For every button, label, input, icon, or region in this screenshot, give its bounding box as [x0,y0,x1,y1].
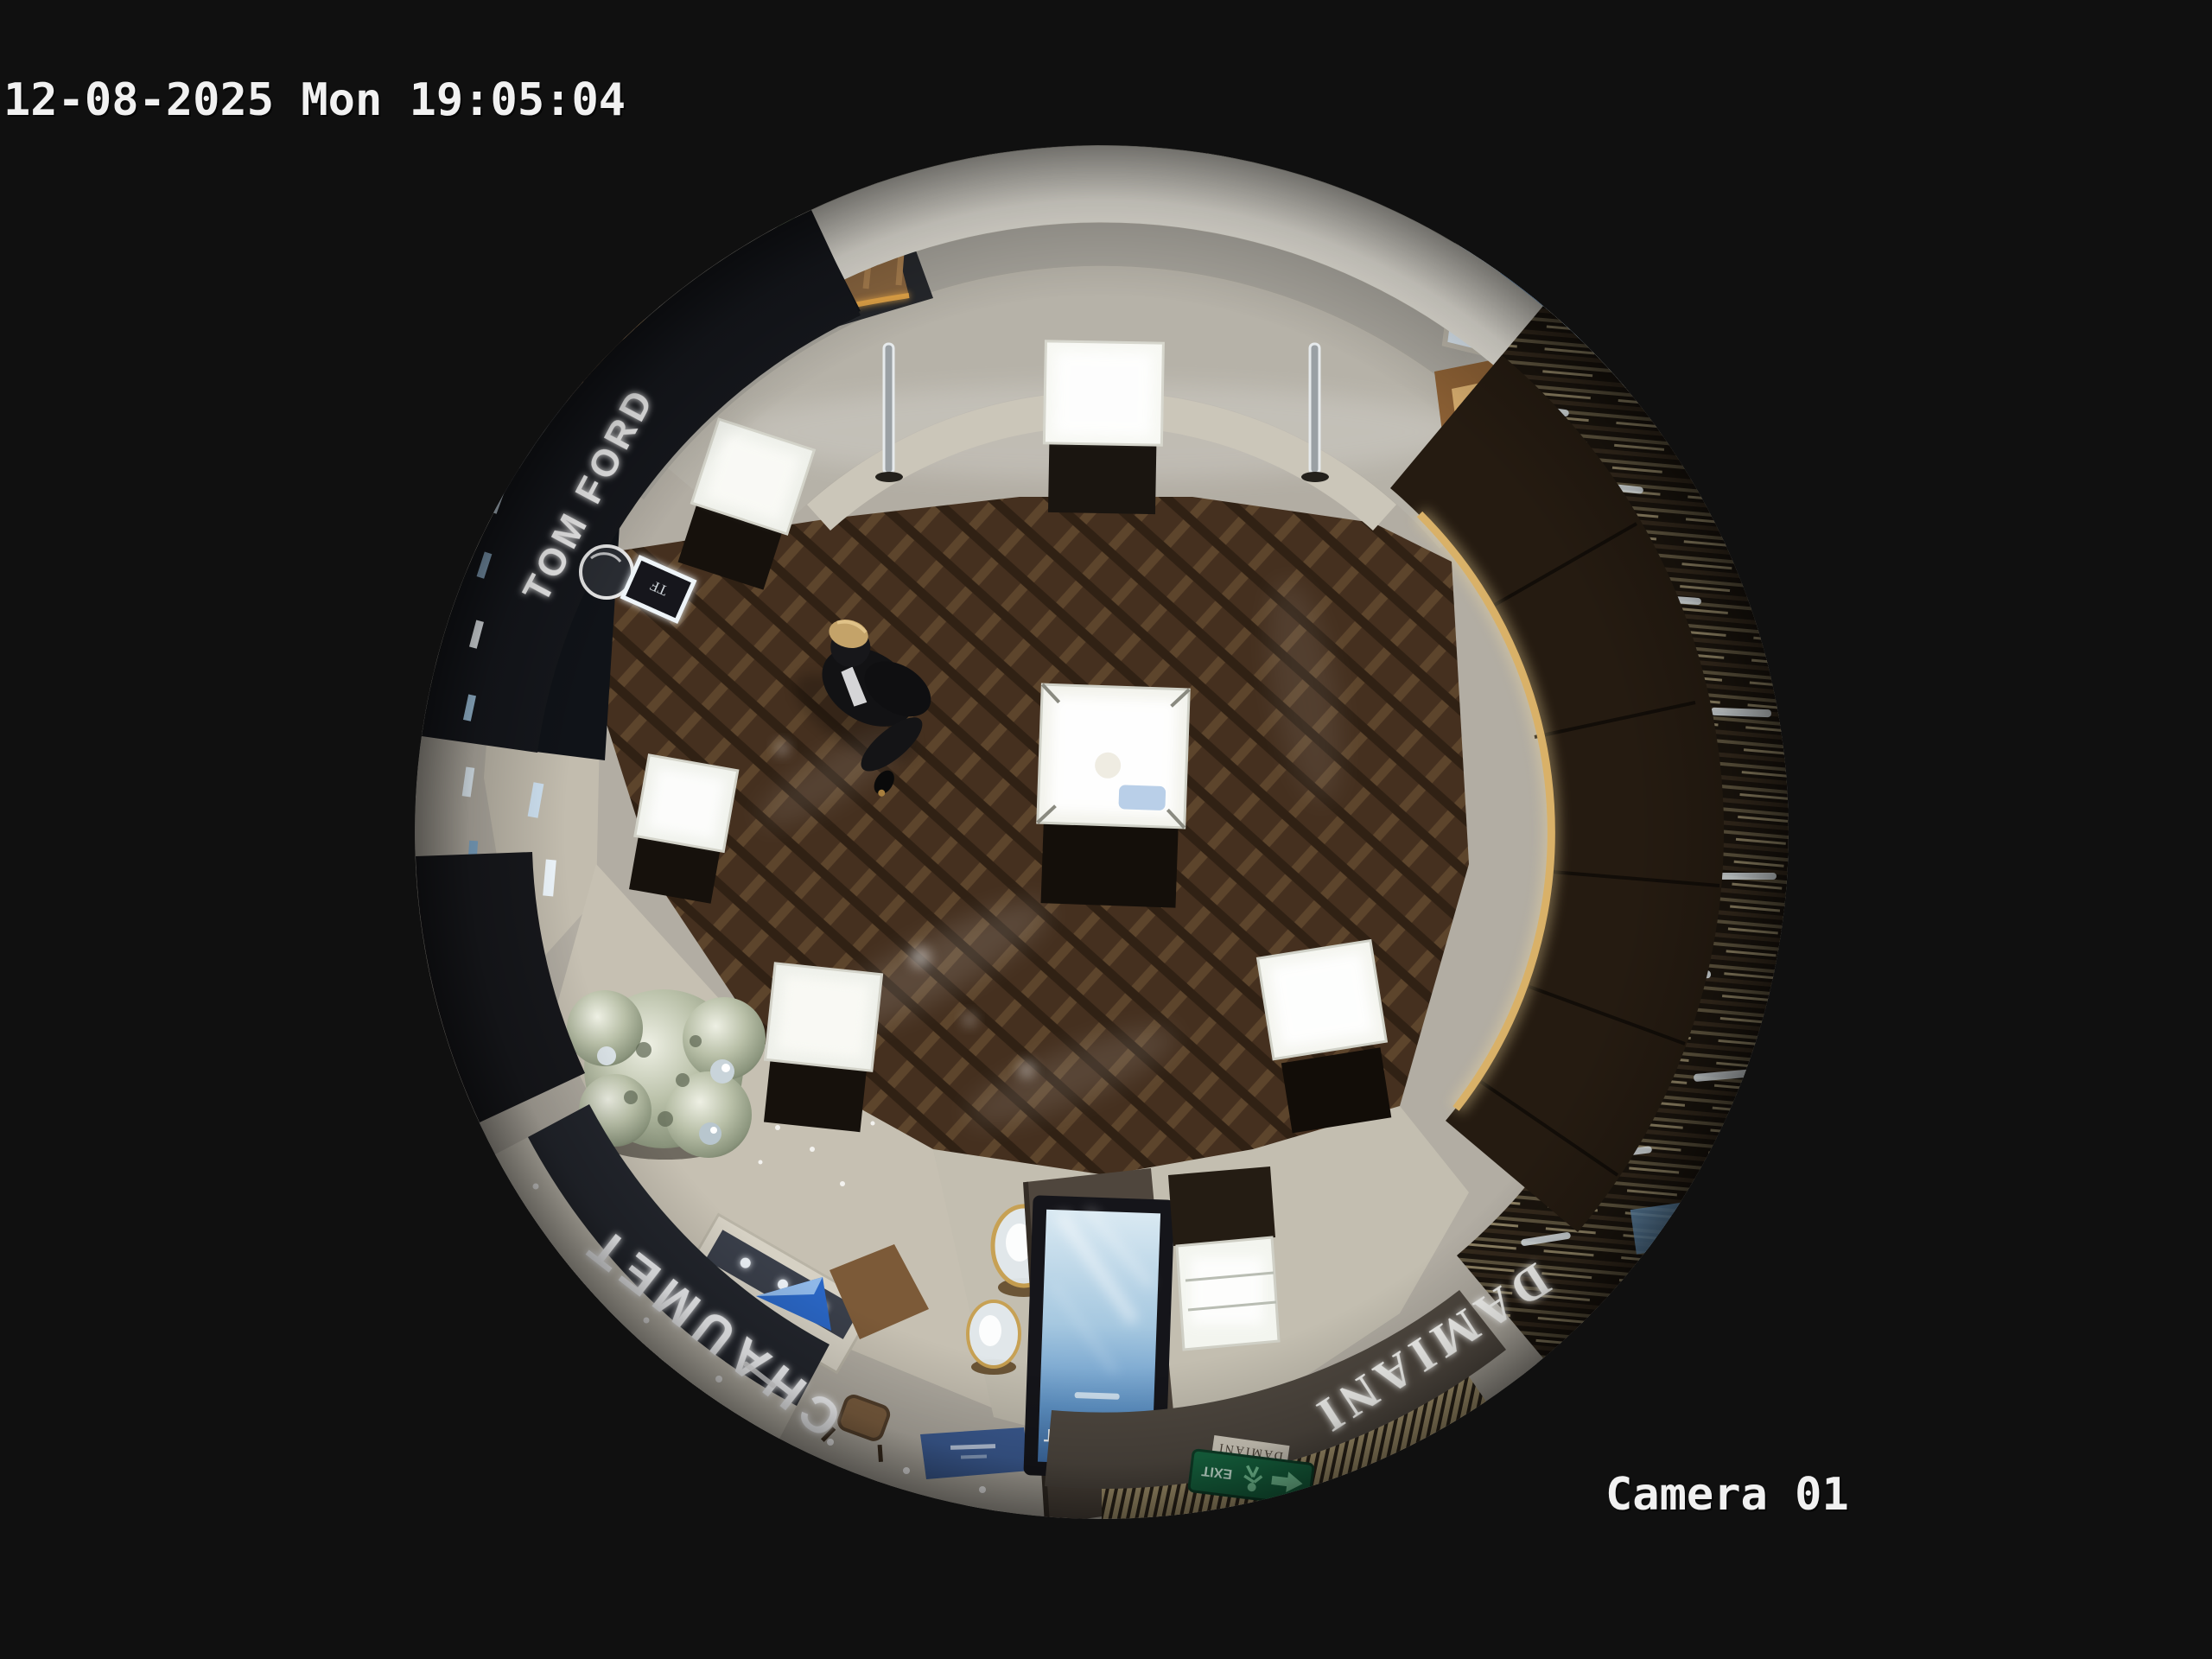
fisheye-circle: TOM FORD TF [415,145,1789,1524]
camera-timestamp-osd: 12-08-2025 Mon 19:05:04 [3,74,626,126]
cctv-view: TOM FORD TF [0,0,2212,1659]
fisheye-feed: TOM FORD TF [0,0,2212,1659]
lens-vignette [415,145,1789,1519]
camera-label-osd: Camera 01 [1605,1469,1849,1521]
